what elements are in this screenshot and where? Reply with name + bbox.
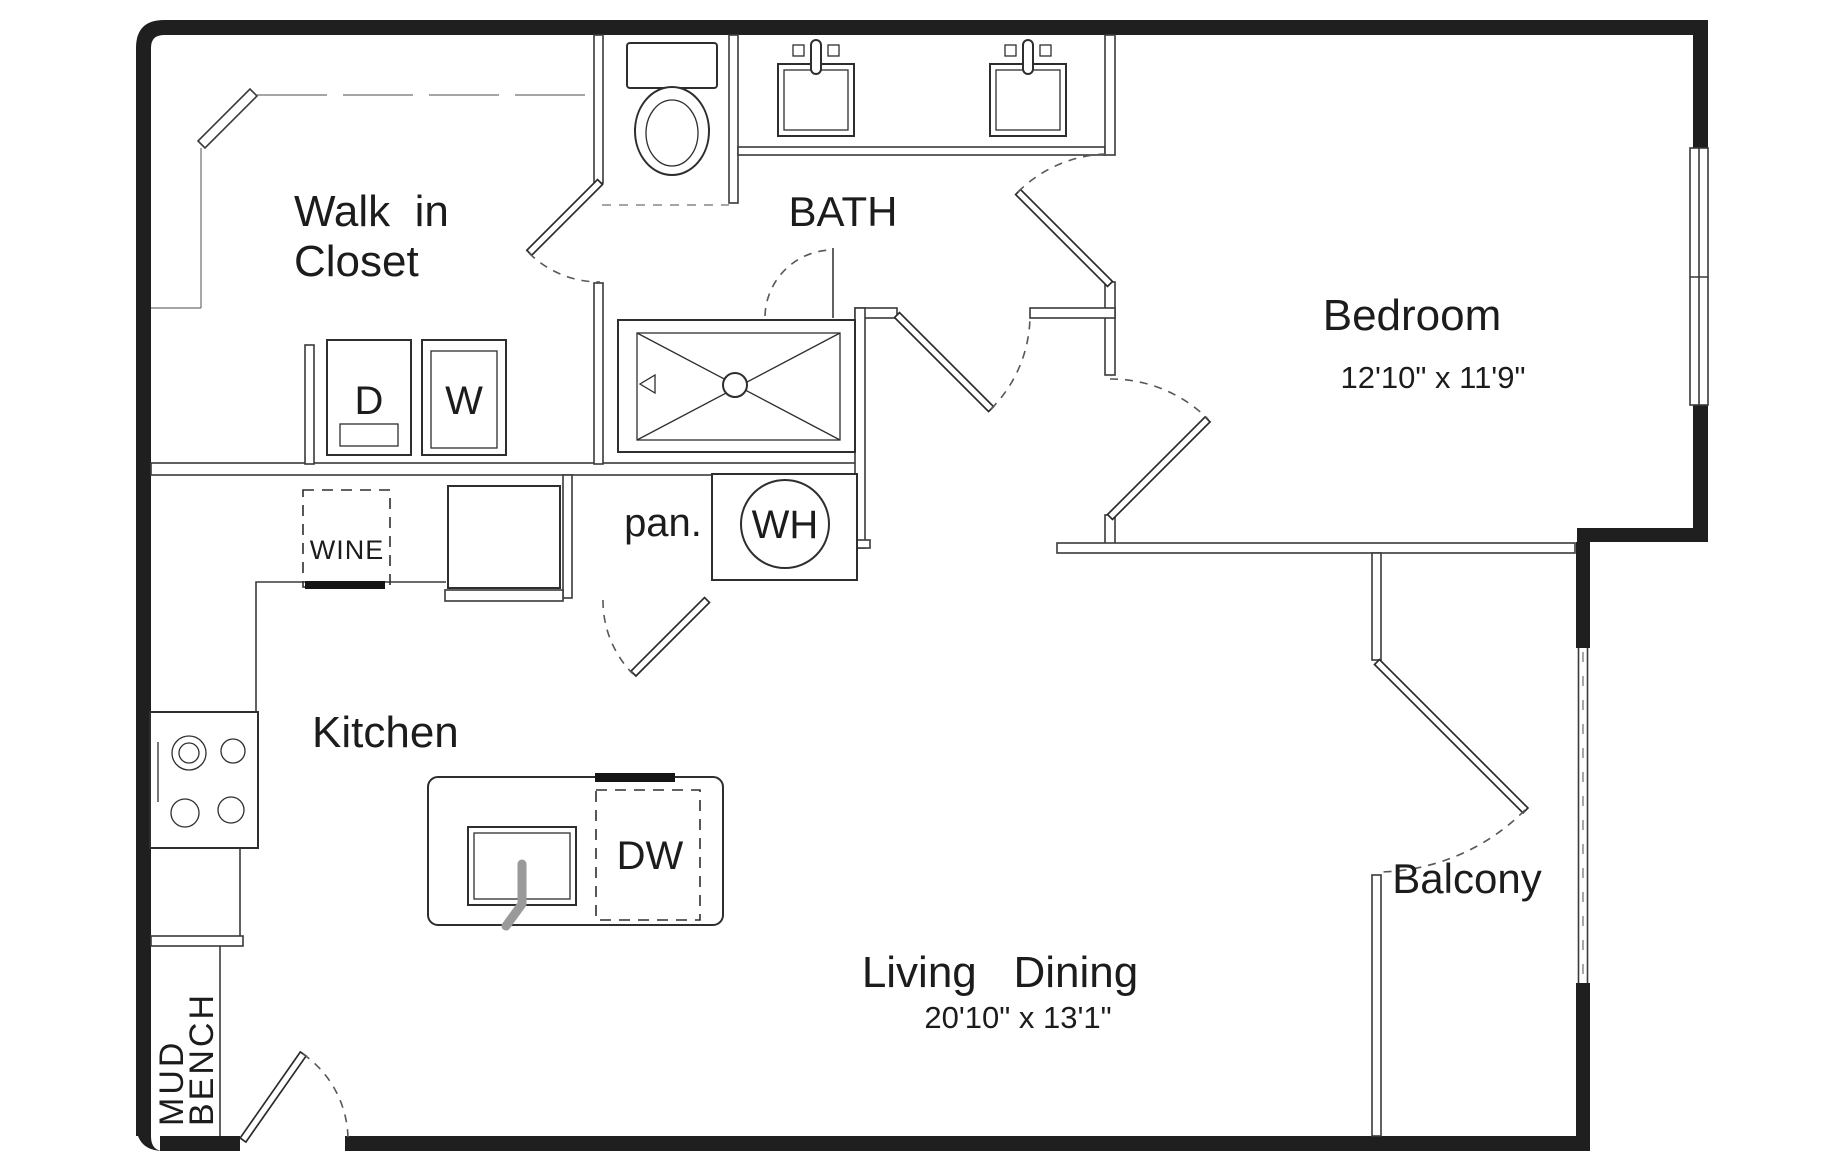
wall-living-north — [1057, 543, 1575, 553]
shower — [618, 320, 855, 452]
wine-label: WINE — [310, 535, 385, 565]
wine-cooler: WINE — [303, 490, 390, 589]
counter-end-cap — [151, 936, 243, 946]
toilet-tank — [627, 43, 717, 88]
wall-toilet-nook-left — [594, 35, 603, 183]
wall-bottom — [345, 1136, 1590, 1151]
refrigerator — [445, 486, 563, 601]
water-heater-closet: WH — [712, 474, 857, 580]
pantry-label: pan. — [624, 501, 702, 545]
wall-balcony-left-upper — [1372, 553, 1381, 660]
wall-balcony-right-lower — [1576, 983, 1590, 1151]
wall-bedroom-west-upper — [1105, 35, 1115, 155]
floor-plan-page: WH pan. D W WINE DW — [0, 0, 1848, 1170]
stove — [150, 712, 258, 848]
closet-label-line1: Walk in — [294, 187, 449, 236]
wall-corner-top-left — [136, 20, 164, 48]
closet-chamfer-wall — [198, 89, 257, 148]
entry-door-swing — [303, 1054, 348, 1138]
mud-bench-label-line2: BENCH — [183, 992, 221, 1126]
faucet-icon — [811, 40, 821, 74]
closet-bath-door-swing — [529, 253, 600, 282]
windows — [1579, 148, 1709, 983]
faucet-icon — [1023, 40, 1033, 74]
bedroom-door-swing — [1110, 379, 1208, 419]
pantry-door-swing — [603, 600, 633, 674]
bedroom-label: Bedroom — [1323, 291, 1502, 340]
toilet — [602, 43, 729, 205]
bath-bedroom-door-swing — [1018, 154, 1110, 192]
living-dining-dims: 20'10" x 13'1" — [924, 1000, 1111, 1035]
wall-vanity-front — [738, 147, 1105, 155]
counter-left-edge — [256, 582, 446, 712]
stove-box — [150, 712, 258, 848]
bedroom-dims: 12'10" x 11'9" — [1341, 360, 1526, 395]
wall-laundry-west-stub — [305, 345, 314, 464]
wall-balcony-right-upper — [1576, 542, 1590, 648]
refrigerator-box — [448, 486, 560, 588]
balcony-door-leaf — [1375, 660, 1528, 813]
wall-bedroom-right-upper — [1693, 20, 1708, 148]
water-heater-label: WH — [752, 503, 819, 547]
wall-pantry-west — [563, 475, 572, 598]
faucet-handle-left-icon — [793, 45, 804, 56]
wall-bedroom-bottom — [1577, 528, 1708, 542]
wall-bottom-left-of-entry — [160, 1136, 240, 1151]
washer-label: W — [445, 379, 483, 423]
kitchen-label: Kitchen — [312, 708, 459, 757]
kitchen-island: DW — [428, 773, 723, 926]
faucet-handle-right-icon — [828, 45, 839, 56]
wall-top — [164, 20, 1693, 35]
wall-bath-west — [594, 283, 603, 464]
pantry-door-leaf — [631, 598, 709, 676]
dryer: D — [327, 340, 411, 455]
dryer-label: D — [355, 379, 384, 423]
wall-bedroom-right-lower — [1693, 405, 1708, 542]
hall-bath-door-swing — [991, 315, 1030, 409]
bath-bedroom-door-leaf — [1016, 190, 1113, 287]
floor-plan-drawing: WH pan. D W WINE DW — [0, 0, 1848, 1170]
wall-bedroom-west-mid — [1105, 282, 1115, 375]
bedroom-door-leaf — [1108, 417, 1211, 520]
closet-bath-door-leaf — [527, 180, 603, 256]
wall-left — [136, 48, 151, 1136]
faucet-handle-right-icon — [1040, 45, 1051, 56]
entry-door-leaf — [240, 1052, 306, 1142]
dishwasher-label: DW — [617, 834, 684, 878]
wall-toilet-nook-right — [729, 35, 738, 203]
bath-inner-door-swing — [765, 250, 831, 316]
washer: W — [422, 340, 506, 455]
wine-counter-mark — [305, 581, 385, 589]
faucet-handle-left-icon — [1005, 45, 1016, 56]
balcony-label: Balcony — [1392, 855, 1541, 902]
wall-balcony-left-lower — [1372, 875, 1381, 1136]
wall-bedroom-closet — [1030, 308, 1115, 318]
vanity-sink-right — [990, 40, 1066, 136]
vanity-sink-left — [778, 40, 854, 136]
hall-bath-door-leaf — [895, 313, 994, 412]
island-counter-mark — [595, 773, 675, 782]
bath-label: BATH — [789, 188, 898, 235]
closet-label-line2: Closet — [294, 237, 419, 286]
living-dining-label: Living Dining — [862, 948, 1138, 997]
refrigerator-door — [445, 590, 563, 601]
shower-drain-icon — [723, 373, 747, 397]
